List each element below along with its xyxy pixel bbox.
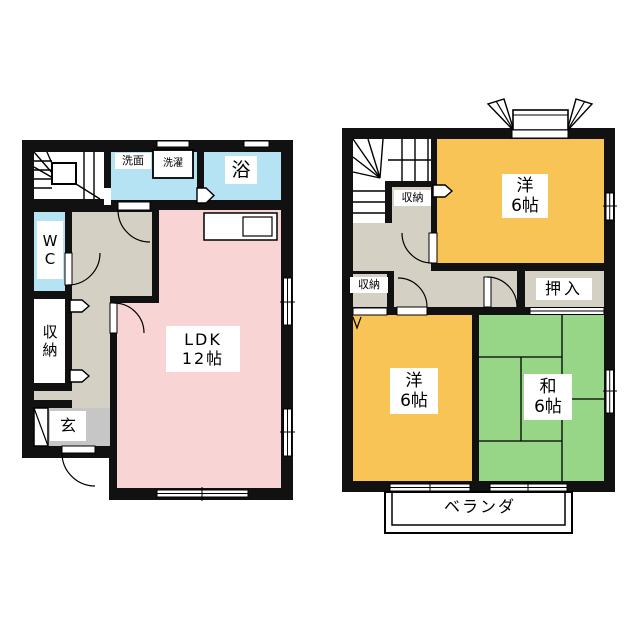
label-western-lower: 洋 6帖 bbox=[390, 368, 438, 414]
label-storage-1f: 収 納 bbox=[37, 305, 63, 377]
window bbox=[157, 141, 189, 147]
corridor-2f-band bbox=[394, 271, 517, 307]
corridor-1f-strip bbox=[34, 391, 72, 400]
label-veranda: ベランダ bbox=[428, 496, 532, 518]
label-laundry: 洗濯 bbox=[157, 156, 189, 171]
bay-window-fan-right bbox=[567, 99, 592, 131]
door-leaf bbox=[62, 446, 95, 453]
door-leaf bbox=[429, 233, 437, 263]
window bbox=[244, 141, 269, 147]
label-entry: 玄 bbox=[50, 411, 86, 441]
stairs-entry-gap-1f bbox=[104, 188, 111, 205]
door-leaf bbox=[397, 307, 427, 315]
sliding-door bbox=[353, 308, 387, 315]
floorplan-drawing bbox=[0, 0, 640, 640]
label-western-upper: 洋 6帖 bbox=[502, 174, 548, 218]
corridor-2f-upper bbox=[353, 223, 431, 271]
label-ldk: LDK 12帖 bbox=[166, 326, 240, 372]
door-leaf bbox=[110, 303, 117, 333]
label-storage-lower-2f: 収納 bbox=[350, 277, 388, 293]
label-japanese: 和 6帖 bbox=[524, 374, 572, 420]
window bbox=[512, 130, 568, 138]
label-oshiire: 押入 bbox=[536, 278, 592, 300]
bay-window-fan-left bbox=[488, 99, 514, 131]
label-bath: 浴 bbox=[225, 156, 257, 184]
floorplan-canvas: 洗面 洗濯 浴 W C 収 納 玄 LDK 12帖 収納 洋 6帖 押入 収納 … bbox=[0, 0, 640, 640]
door-leaf bbox=[484, 277, 491, 307]
bay-window-box bbox=[513, 110, 568, 130]
door-leaf bbox=[65, 253, 72, 285]
kitchen-sink bbox=[243, 217, 272, 236]
label-washroom: 洗面 bbox=[115, 153, 151, 169]
door-leaf bbox=[118, 202, 150, 210]
label-storage-upper-2f: 収納 bbox=[394, 190, 431, 206]
floor2-plan bbox=[342, 99, 617, 533]
label-wc: W C bbox=[37, 221, 63, 279]
